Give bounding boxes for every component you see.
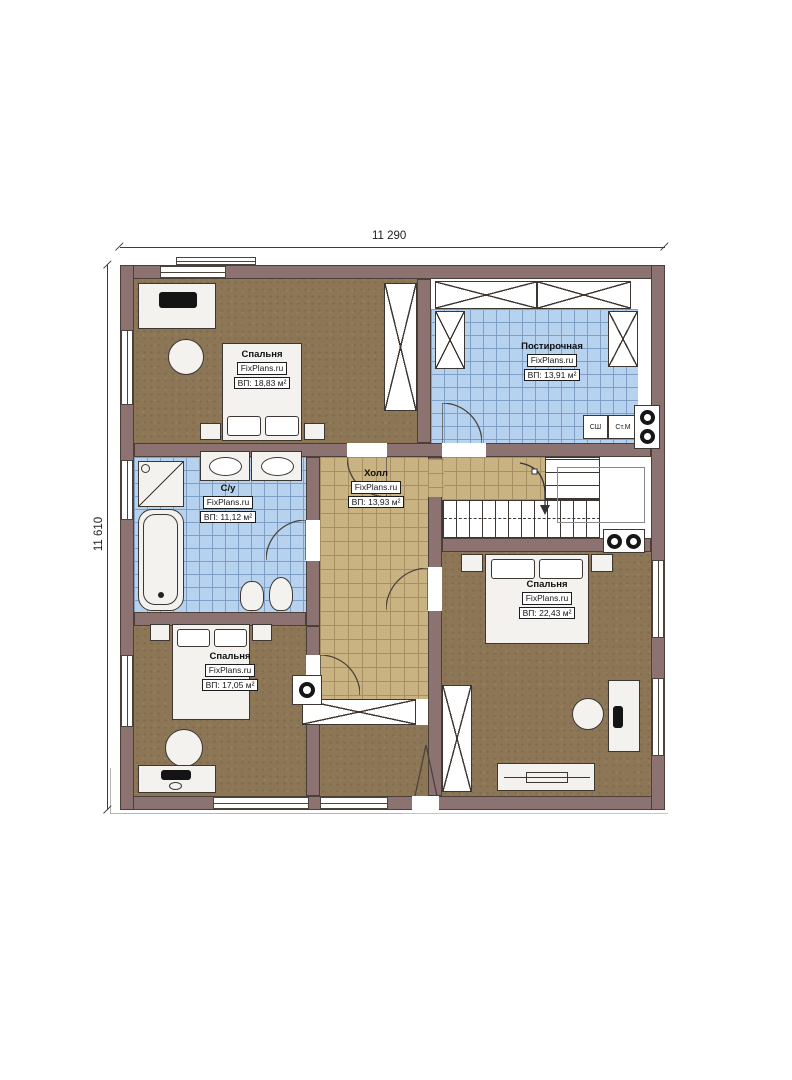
window-bottom-bedroom3 — [213, 797, 309, 809]
sink-basin — [261, 457, 294, 476]
door-arc-bathroom — [266, 520, 306, 560]
door-arc-bedroom-right — [386, 568, 428, 610]
computer-icon — [613, 706, 623, 728]
tv-icon — [161, 770, 191, 780]
vent-ring-icon — [607, 534, 622, 549]
wardrobe-bedroom-right — [442, 685, 472, 792]
vent-ring-icon — [640, 429, 655, 444]
room-area: ВП: 13,93 м² — [348, 496, 405, 508]
dimension-height-label: 11 610 — [93, 513, 105, 555]
room-name: Спальня — [526, 579, 567, 590]
dryer-label: Ст.М — [615, 424, 630, 431]
door-arc-bedroom3 — [320, 655, 360, 695]
door-opening-bedroom1-hall — [347, 443, 387, 457]
window-bottom-corridor — [320, 797, 388, 809]
chimney-ring-icon — [299, 682, 315, 698]
speaker-icon — [169, 782, 182, 790]
drain-icon — [158, 592, 164, 598]
room-brand: FixPlans.ru — [522, 592, 573, 604]
pillow-icon — [491, 559, 535, 579]
door-opening-laundry — [442, 443, 486, 457]
floor-plan: Спальня FixPlans.ru ВП: 18,83 м² СШ Ст.М… — [120, 265, 665, 810]
door-opening-balcony — [412, 796, 439, 810]
pillow-icon — [177, 629, 210, 647]
room-brand: FixPlans.ru — [527, 354, 578, 366]
room-brand: FixPlans.ru — [203, 496, 254, 508]
sink-basin — [209, 457, 242, 476]
sink-icon — [251, 451, 302, 481]
room-name: Спальня — [209, 651, 250, 662]
closet-laundry-top-2 — [537, 281, 631, 309]
window-right-bedroom-2 — [652, 678, 664, 756]
room-brand: FixPlans.ru — [205, 664, 256, 676]
window-left-bathroom — [121, 460, 133, 520]
dimension-width-label: 11 290 — [368, 230, 410, 242]
shower-head-icon — [141, 464, 150, 473]
nightstand — [591, 554, 613, 572]
room-area: ВП: 13,91 м² — [524, 369, 581, 381]
dresser-tv-stand — [138, 283, 216, 329]
balcony-door-leaf — [412, 743, 440, 796]
window-right-bedroom-1 — [652, 560, 664, 638]
dimension-line-left — [107, 265, 108, 810]
closet-laundry-left — [435, 311, 465, 369]
room-name: Холл — [364, 468, 388, 479]
nightstand — [252, 624, 272, 641]
desk-bedroom-right — [608, 680, 640, 752]
room-label-hall: Холл FixPlans.ru ВП: 13,93 м² — [328, 468, 424, 508]
wall-exterior-bottom — [120, 796, 665, 810]
wardrobe-bedroom1 — [384, 283, 417, 411]
window-top-bedroom1 — [160, 266, 226, 278]
shower-icon — [138, 461, 184, 507]
room-area: ВП: 11,12 м² — [200, 511, 256, 523]
pillow-icon — [265, 416, 299, 436]
stair-direction-arrow — [500, 457, 651, 538]
toilet-icon — [240, 581, 264, 611]
armchair-icon — [165, 729, 203, 767]
flue-rings-laundry — [634, 405, 660, 449]
pillow-icon — [227, 416, 261, 436]
window-sill-top — [176, 257, 256, 265]
washer-box: СШ — [583, 415, 608, 439]
vent-ring-icon — [640, 410, 655, 425]
flue-rings-stairs — [603, 529, 645, 553]
room-brand: FixPlans.ru — [237, 362, 288, 374]
nightstand — [304, 423, 325, 440]
door-arc-laundry — [442, 403, 482, 443]
room-label-bedroom3: Спальня FixPlans.ru ВП: 17,05 м² — [183, 651, 277, 691]
office-chair-icon — [572, 698, 604, 730]
floor-plan-page: 11 290 11 610 — [0, 0, 792, 1080]
chimney-box — [292, 675, 322, 705]
armchair-icon — [168, 339, 204, 375]
room-area: ВП: 18,83 м² — [234, 377, 291, 389]
wall-bedroom1-laundry — [417, 279, 431, 443]
window-left-bedroom1 — [121, 330, 133, 405]
room-name: С/у — [221, 483, 236, 494]
vent-ring-icon — [626, 534, 641, 549]
sink-icon — [200, 451, 250, 481]
room-area: ВП: 22,43 м² — [519, 607, 576, 619]
room-label-bedroom-right: Спальня FixPlans.ru ВП: 22,43 м² — [498, 579, 596, 619]
bidet-icon — [269, 577, 293, 611]
nightstand — [461, 554, 483, 572]
door-opening-bedroom-right — [428, 567, 442, 611]
door-opening-bathroom — [306, 520, 320, 561]
bathtub-icon — [138, 509, 184, 611]
room-label-bedroom1: Спальня FixPlans.ru ВП: 18,83 м² — [220, 349, 304, 389]
room-brand: FixPlans.ru — [351, 481, 402, 493]
room-area: ВП: 17,05 м² — [202, 679, 259, 691]
nightstand — [200, 423, 221, 440]
pillow-icon — [539, 559, 583, 579]
desk-tv-stand-bedroom3 — [138, 765, 216, 793]
window-left-bedroom3 — [121, 655, 133, 727]
closet-laundry-right — [608, 311, 638, 367]
closet-laundry-top-1 — [435, 281, 537, 309]
room-label-laundry: Постирочная FixPlans.ru ВП: 13,91 м² — [492, 341, 612, 381]
dresser-handle-plate — [526, 772, 568, 783]
room-name: Спальня — [241, 349, 282, 360]
room-label-bathroom: С/у FixPlans.ru ВП: 11,12 м² — [180, 483, 276, 523]
tv-icon — [159, 292, 197, 308]
dimension-line-top — [120, 247, 665, 248]
pillow-icon — [214, 629, 247, 647]
room-name: Постирочная — [521, 341, 583, 352]
nightstand — [150, 624, 170, 641]
dresser-bedroom-right — [497, 763, 595, 791]
passage-hall-stairs — [428, 459, 444, 497]
washer-label: СШ — [590, 424, 601, 431]
